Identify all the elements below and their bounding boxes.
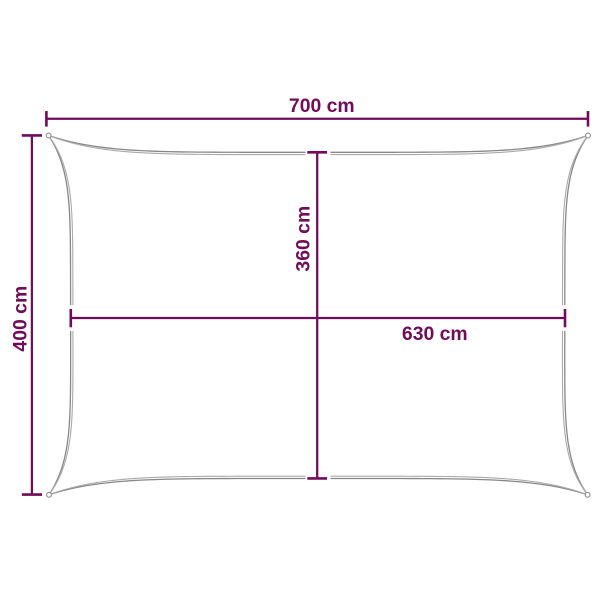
svg-text:630 cm: 630 cm	[402, 323, 468, 345]
svg-text:400 cm: 400 cm	[9, 286, 31, 352]
svg-text:360 cm: 360 cm	[293, 206, 315, 272]
svg-text:700 cm: 700 cm	[289, 95, 355, 117]
